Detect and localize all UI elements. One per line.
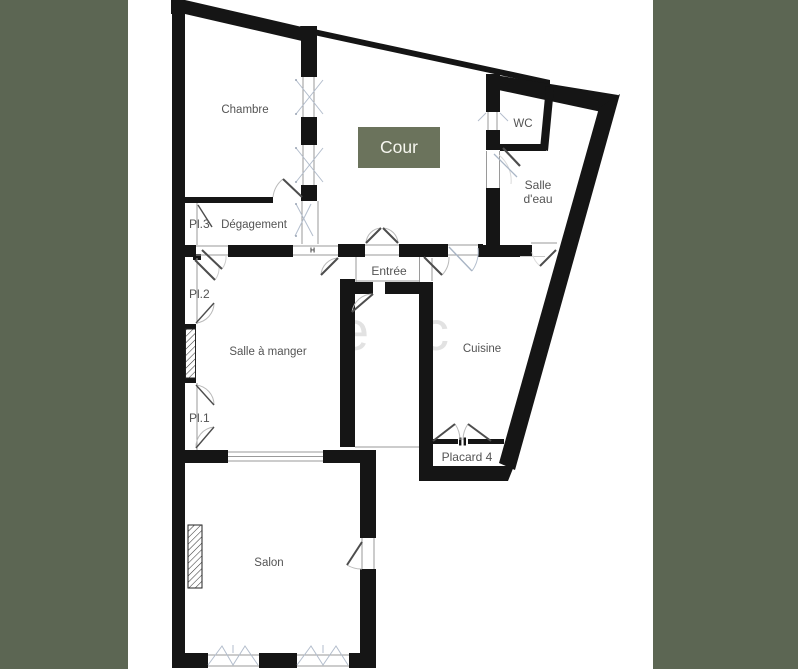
svg-text:Chambre: Chambre	[221, 104, 268, 116]
svg-text:Pl.3: Pl.3	[189, 217, 210, 231]
svg-text:WC: WC	[513, 118, 532, 130]
svg-text:H: H	[310, 248, 315, 255]
svg-text:Placard 4: Placard 4	[442, 450, 493, 464]
svg-text:Salle: Salle	[525, 178, 552, 192]
svg-text:d'eau: d'eau	[524, 192, 553, 206]
svg-text:Dégagement: Dégagement	[221, 219, 288, 231]
svg-text:Pl.1: Pl.1	[189, 411, 210, 425]
svg-text:Salon: Salon	[254, 557, 283, 569]
svg-text:Pl.2: Pl.2	[189, 287, 210, 301]
svg-text:Cour: Cour	[380, 137, 418, 157]
svg-text:Cuisine: Cuisine	[463, 343, 501, 355]
svg-text:Salle à manger: Salle à manger	[229, 346, 307, 358]
svg-text:Entrée: Entrée	[371, 264, 407, 278]
